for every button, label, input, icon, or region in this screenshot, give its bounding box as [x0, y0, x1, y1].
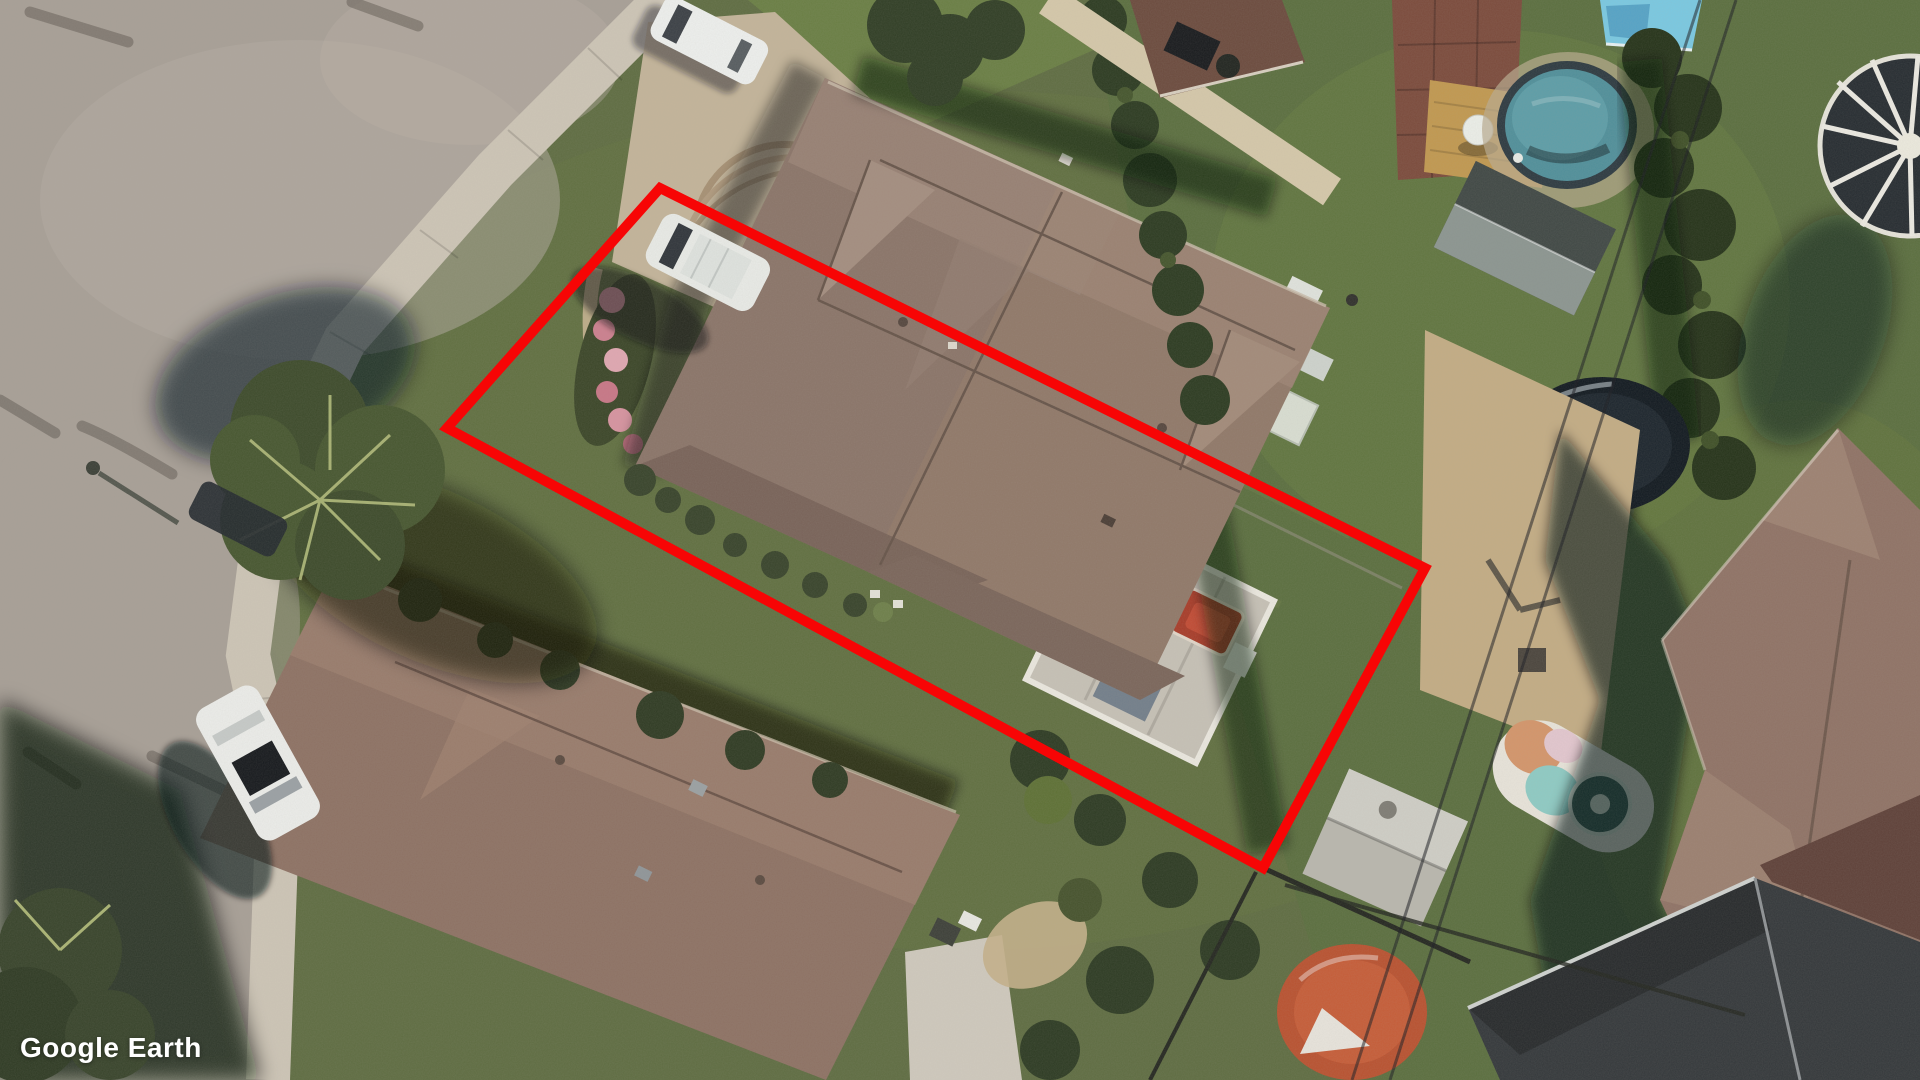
- satellite-image: [0, 0, 1920, 1080]
- photo-grain: [0, 0, 1920, 1080]
- google-earth-viewport[interactable]: Google Earth: [0, 0, 1920, 1080]
- google-earth-watermark: Google Earth: [20, 1032, 202, 1064]
